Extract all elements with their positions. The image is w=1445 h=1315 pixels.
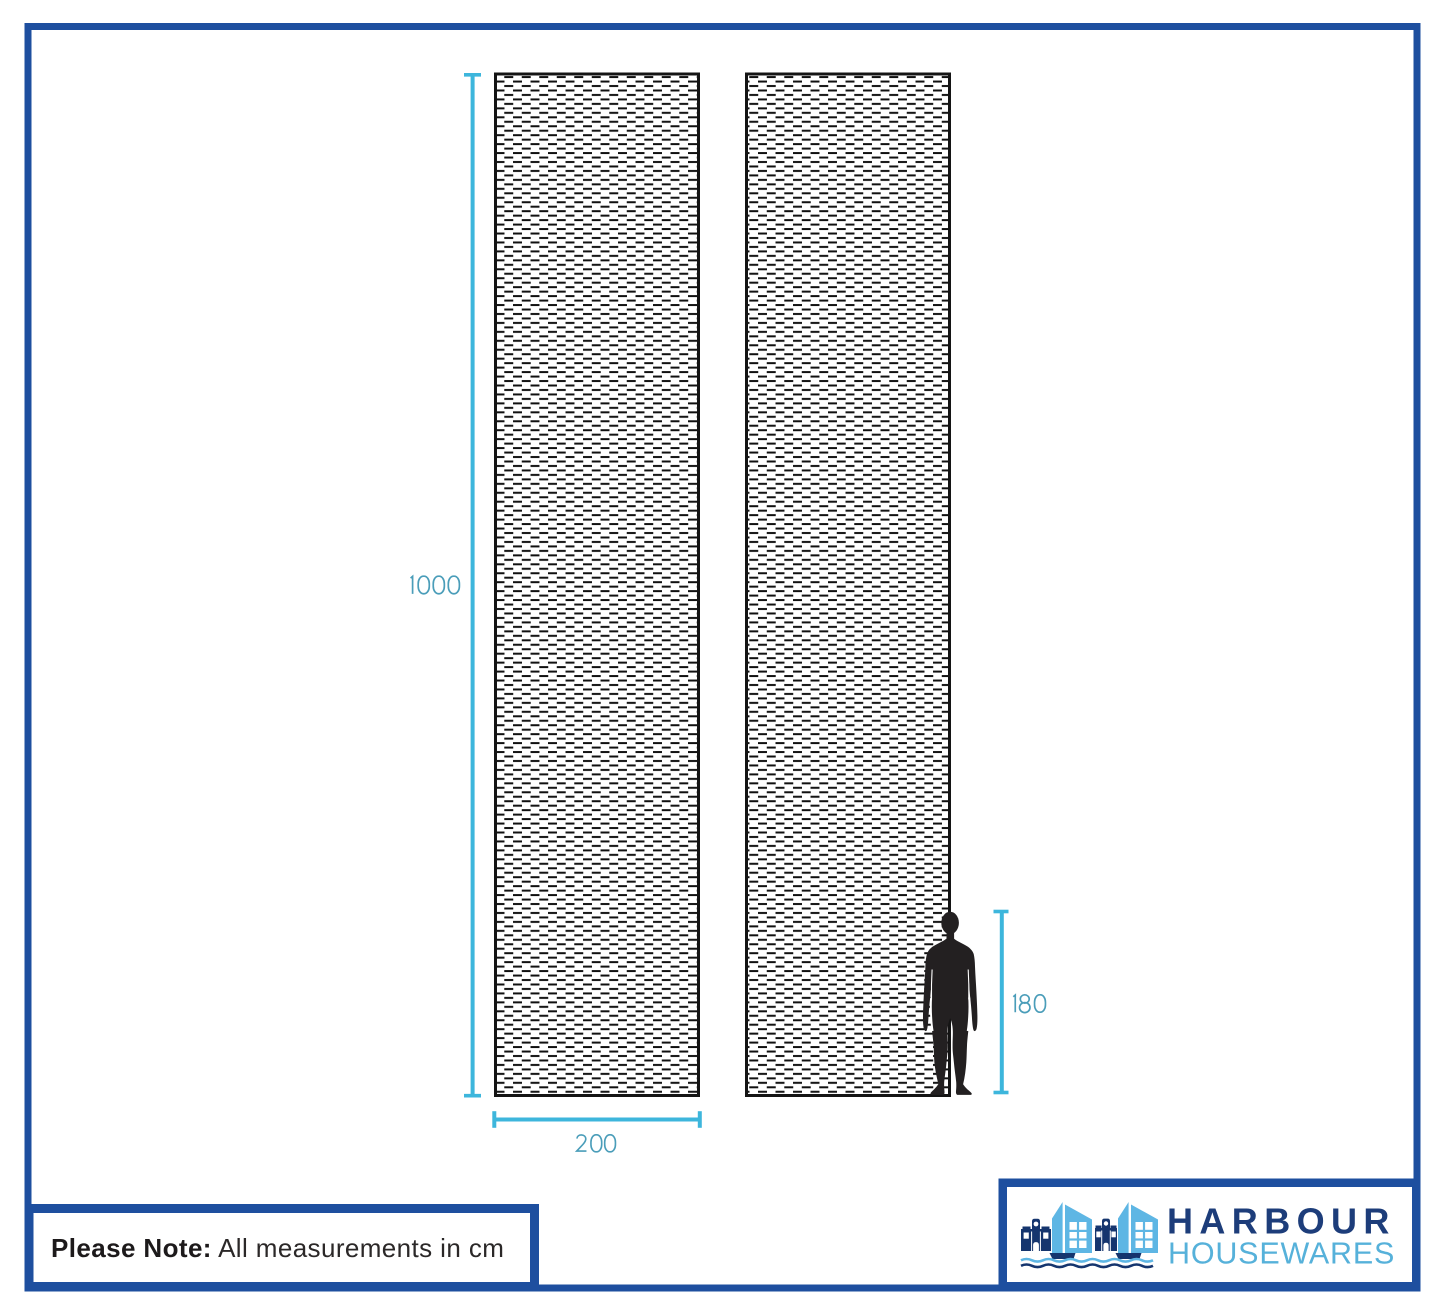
svg-text:Please Note: All measurements: Please Note: All measurements in cm	[51, 1233, 504, 1263]
svg-text:HOUSEWARES: HOUSEWARES	[1168, 1236, 1395, 1270]
